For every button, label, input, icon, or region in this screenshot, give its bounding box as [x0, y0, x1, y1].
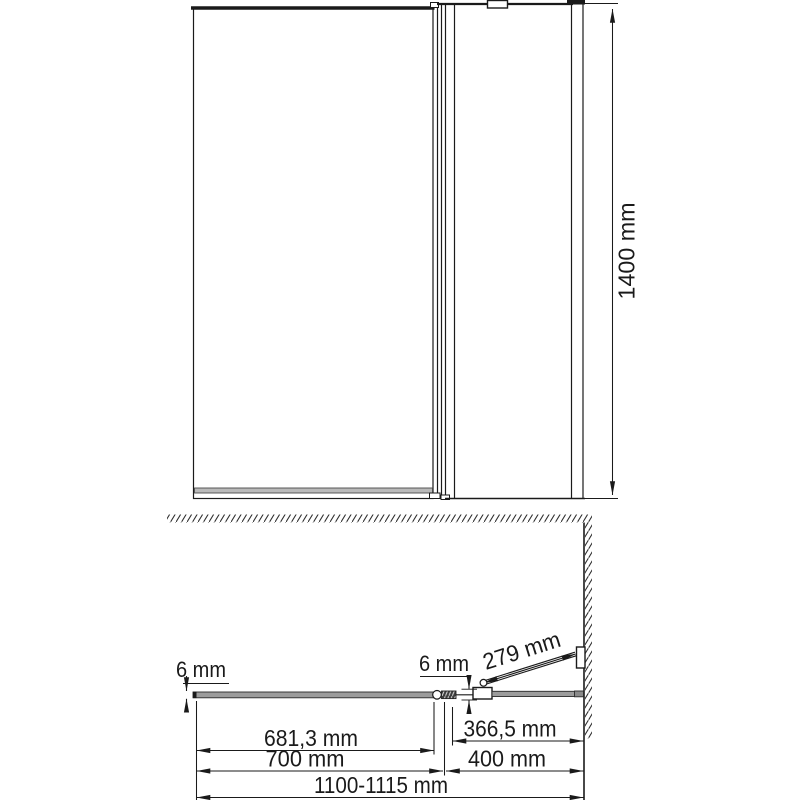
- hinge-cylinder: [442, 691, 457, 699]
- arm-length-label: 279 mm: [480, 626, 564, 675]
- fixed-glass-end-cap: [193, 692, 197, 698]
- height-dimension-label: 1400 mm: [614, 203, 640, 300]
- fixed-glass-plan: [193, 692, 434, 698]
- wall-profile-top-cap: [567, 0, 585, 5]
- hinge-knob: [433, 691, 442, 700]
- door-glass-width-label: 366,5 mm: [464, 716, 557, 742]
- door-glass-thickness-dimension: 6 mm: [419, 651, 477, 713]
- front-view: 1400 mm: [191, 0, 640, 500]
- fixed-panel-outline: [194, 8, 434, 499]
- hinge-bottom-foot: [430, 493, 441, 499]
- height-dimension: 1400 mm: [583, 4, 640, 499]
- door-glass-end-cap: [575, 691, 584, 697]
- width-dimensions: 681,3 mm 366,5 mm 700 mm 400 mm 1100-111…: [197, 716, 584, 799]
- swing-arm: 279 mm: [480, 626, 585, 686]
- bottom-rail: [195, 488, 433, 493]
- bath-screen-drawing: 1400 mm 279 mm 6: [0, 0, 800, 800]
- door-glass-thickness-label: 6 mm: [419, 651, 469, 676]
- door-section-width-label: 400 mm: [468, 746, 546, 772]
- arm-wall-bracket: [577, 647, 586, 668]
- arm-pivot-joint: [480, 679, 487, 686]
- hinge-plan: [433, 691, 473, 700]
- door-panel: [437, 0, 585, 499]
- fixed-glass-thickness-label: 6 mm: [176, 657, 226, 682]
- door-glass-plan: [492, 691, 583, 696]
- fixed-section-width-label: 700 mm: [266, 746, 345, 772]
- wall-hatch-right: [585, 523, 592, 739]
- top-wall-bracket: [488, 1, 508, 9]
- technical-drawing-page: 1400 mm 279 mm 6: [0, 0, 800, 800]
- wall-hatch-top: [167, 515, 592, 523]
- plan-view: 279 mm 6 mm 6 mm 681,3 mm: [167, 515, 592, 800]
- total-width-label: 1100-1115 mm: [314, 772, 448, 798]
- fixed-glass-thickness-dimension: 6 mm: [176, 657, 229, 712]
